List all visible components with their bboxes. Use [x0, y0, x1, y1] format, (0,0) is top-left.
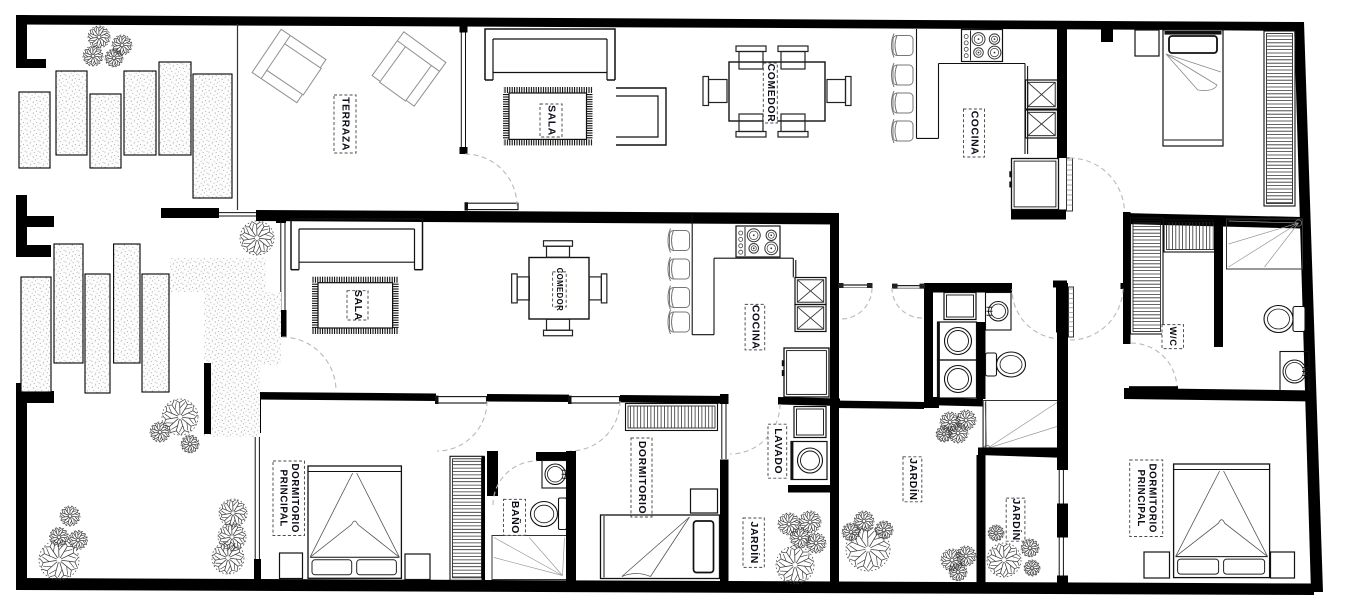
svg-text:JARDÍN: JARDÍN [907, 458, 920, 500]
svg-text:LAVADO: LAVADO [772, 428, 783, 474]
svg-text:SALA: SALA [546, 105, 557, 136]
svg-text:COCINA: COCINA [749, 305, 760, 350]
svg-text:COMEDOR: COMEDOR [765, 64, 776, 123]
svg-text:W/C: W/C [1168, 327, 1178, 347]
svg-text:COCINA: COCINA [969, 111, 980, 156]
svg-text:COMEDOR: COMEDOR [555, 268, 564, 312]
svg-text:PRINCIPAL: PRINCIPAL [1135, 470, 1146, 527]
svg-text:JARDÍN: JARDÍN [748, 522, 761, 564]
svg-text:TERRAZA: TERRAZA [340, 97, 351, 151]
svg-text:DORMITORIO: DORMITORIO [636, 441, 647, 514]
svg-text:DORMITORIO: DORMITORIO [1146, 464, 1157, 534]
svg-text:DORMITORIO: DORMITORIO [289, 464, 300, 534]
svg-text:PRINCIPAL: PRINCIPAL [278, 470, 289, 527]
svg-text:SALA: SALA [352, 290, 363, 321]
svg-text:BAÑO: BAÑO [509, 501, 522, 534]
svg-text:JARDÍN: JARDÍN [1010, 499, 1023, 541]
